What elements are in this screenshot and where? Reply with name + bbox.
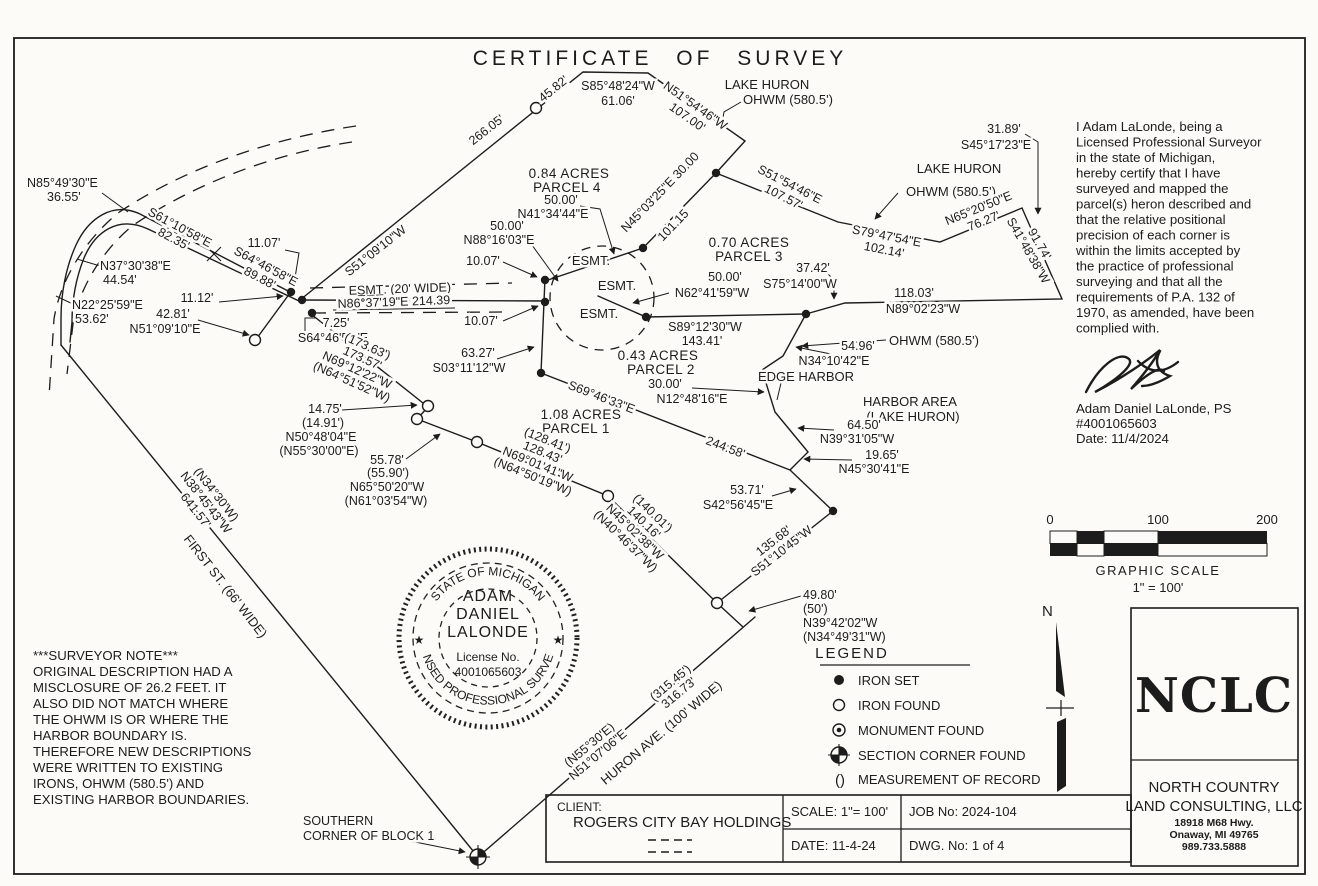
iron-set-symbol [712,169,720,177]
graphic-scale: 0 100 200 GRAPHIC SCALE 1" = 100' [1046,512,1277,595]
cert-line: requirements of P.A. 132 of [1076,290,1235,305]
note-line: HARBOR BOUNDARY IS. [33,728,187,743]
dim-label: 36.55' [47,190,81,204]
dim-label: 54.96' [841,339,875,353]
dim-label: 11.07' [248,236,281,250]
harbor-label: EDGE HARBOR [758,369,854,384]
iron-found-icon [834,700,845,711]
cert-line: surveyed and mapped the [1076,181,1229,196]
client-name: ROGERS CITY BAY HOLDINGS [573,814,791,831]
legend-item-label: SECTION CORNER FOUND [858,748,1026,763]
dim-label: 49.80' [803,588,837,602]
seal-license-label: License No. [456,650,519,664]
dim-label: N45°03'25"E 30.00 [618,149,701,235]
note-line: ORIGINAL DESCRIPTION HAD A [33,664,233,679]
section-corner-icon [828,744,850,766]
iron-set-symbol [287,288,295,296]
parcel-area-label: 0.70 ACRES [709,235,790,250]
dim-label: N12°48'16"E [657,392,728,406]
cert-line: in the state of Michigan, [1076,150,1215,165]
dim-label: 143.41' [682,334,723,348]
dim-label: 30.00' [648,377,682,391]
dim-label: N22°25'59"E [72,298,143,312]
note-line: THE OHWM IS OR WHERE THE [33,712,229,727]
firm-name: LAND CONSULTING, LLC [1125,798,1302,815]
legend-title: LEGEND [815,645,889,662]
scale-label: GRAPHIC SCALE [1096,563,1221,578]
ohwm-label: OHWM (580.5') [743,92,833,107]
dim-label: 118.03' [894,286,934,300]
dim-label: 14.75' [308,402,342,416]
legend-item-label: MONUMENT FOUND [858,723,984,738]
dim-label: 53.71' [730,483,764,497]
dim-label: 44.54' [103,273,137,287]
ohwm-label: OHWM (580.5') [889,333,979,348]
scale-tick: 200 [1256,512,1278,527]
iron-set-symbol [802,310,810,318]
parcel-name-label: PARCEL 3 [715,249,783,264]
dim-label: 31.89' [987,122,1021,136]
corner-note-label: SOUTHERN [303,814,373,828]
dim-label: N39°42'02"W [803,616,878,630]
dim-label: S51°09'10"W [342,223,409,280]
dim-label: S89°12'30"W [668,320,742,334]
cert-line: hereby certify that I have [1076,166,1220,181]
parcel-area-label: 0.84 ACRES [529,166,610,181]
dim-label: 101.15 [655,207,692,244]
surveyor-name: Adam Daniel LaLonde, PS [1076,401,1232,416]
dim-label: 53.62' [75,312,109,326]
dim-label: 11.12' [181,291,214,305]
iron-set-symbol [829,507,837,515]
dim-label: 50.00' [544,193,578,207]
note-line: ALSO DID NOT MATCH WHERE [33,696,228,711]
easement-label: ESMT. [572,253,610,268]
dim-label: N37°30'38"E [100,259,171,273]
dim-label-group: S61°10'58"E 82.35' [139,205,214,262]
page-title: CERTIFICATE OF SURVEY [473,47,848,70]
iron-set-symbol [541,276,549,284]
legend-item-label: MEASUREMENT OF RECORD [858,772,1041,787]
cert-line: I Adam LaLonde, being a [1076,119,1223,134]
cert-line: the practice of professional [1076,259,1234,274]
dim-label: N62°41'59"W [675,286,750,300]
legend-item-label: IRON FOUND [858,698,940,713]
seal-star-icon: ★ [414,633,425,647]
dim-label: N89°02'23"W [886,302,961,316]
iron-set-symbol [298,296,306,304]
firm-phone: 989.733.5888 [1182,841,1246,853]
parcel-name-label: PARCEL 2 [627,362,695,377]
dim-label-group: N51°54'46"W 107.00' [653,79,730,145]
dim-label: (55.90') [367,466,409,480]
cert-line: Licensed Professional Surveyor [1076,135,1262,150]
north-arrow: N [1042,603,1074,792]
iron-set-icon [834,675,844,685]
cert-line: parcel(s) heron described and [1076,197,1251,212]
firm-address: 18918 M68 Hwy. [1174,817,1253,829]
dim-label: 50.00' [490,219,524,233]
cert-line: within the limits accepted by [1075,243,1241,258]
dim-label-group: 135.68' S51°10'45"W [740,513,815,580]
seal-star-icon: ★ [553,633,564,647]
note-line: IRONS, OHWM (580.5') AND [33,776,204,791]
dim-label: 266.05' [466,112,507,148]
dim-label: N51°09'10"E [130,322,201,336]
iron-set-symbol [308,309,316,317]
seal-name-line: LALONDE [447,624,529,641]
dim-label: N65°50'20"W [350,480,425,494]
iron-set-symbol [639,244,647,252]
dim-label: 10.07' [466,254,500,268]
dim-label: 244.58' [704,433,747,461]
dim-label: S45°17'23"E [961,138,1031,152]
title-block: CLIENT: ROGERS CITY BAY HOLDINGS SCALE: … [546,795,1131,862]
dim-label: N45°30'41"E [839,462,910,476]
harbor-label: HARBOR AREA [863,394,957,409]
dim-label: 45.82' [536,73,571,105]
firm-name: NORTH COUNTRY [1148,779,1279,796]
waterbody-label: LAKE HURON [917,161,1002,176]
dim-label: 19.65' [865,448,899,462]
note-line: ***SURVEYOR NOTE*** [33,648,178,663]
dim-label: N41°34'44"E [518,207,589,221]
cert-line: 1970, as amended, have been [1076,305,1254,320]
note-line: MISCLOSURE OF 26.2 FEET. IT [33,680,226,695]
dim-label-group: S79°47'54"E 102.14' [848,223,922,264]
dim-label: 61.06' [601,94,635,108]
surveyor-license: #4001065603 [1076,416,1157,431]
iron-found-symbol [712,598,723,609]
waterbody-label: LAKE HURON [725,77,810,92]
dim-label: (50') [803,602,828,616]
seal-name-line: ADAM [463,588,513,605]
scale-ratio: 1" = 100' [1133,580,1184,595]
dim-label: N50°48'04"E [286,430,357,444]
dim-label: 55.78' [370,453,404,467]
north-label: N [1042,603,1053,620]
dim-label: S75°14'00"W [763,277,837,291]
client-label: CLIENT: [557,800,602,814]
dim-label: N34°10'42"E [799,354,870,368]
dim-label: (14.91') [302,416,344,430]
dim-label: (N34°49'31"W) [803,630,886,644]
seal-license-number: 4001065603 [455,665,522,679]
signature [1086,350,1178,392]
iron-found-symbol [412,414,423,425]
parcel-area-label: 1.08 ACRES [541,407,622,422]
firm-box: NCLC NORTH COUNTRY LAND CONSULTING, LLC … [1125,608,1302,866]
drawing-number-field: DWG. No: 1 of 4 [909,838,1004,853]
survey-drawing: CERTIFICATE OF SURVEY [0,0,1318,886]
dim-label: N88°16'03"E [464,233,535,247]
scale-tick: 0 [1046,512,1053,527]
scale-bar [1050,531,1267,556]
certification-statement: I Adam LaLonde, being a Licensed Profess… [1075,119,1262,446]
iron-set-symbol [642,313,650,321]
dim-label: 42.81' [156,307,190,321]
scale-tick: 100 [1147,512,1169,527]
dim-label-group: (N34°30'W) N38°45'43"W 641.57' [167,461,244,544]
cert-line: complied with. [1076,321,1160,336]
iron-found-symbol [250,335,261,346]
dim-label: 7.25' [323,316,350,330]
scale-field: SCALE: 1"= 100' [791,804,888,819]
note-line: WERE WRITTEN TO EXISTING [33,760,223,775]
iron-found-symbol [603,491,614,502]
dim-label: N39°31'05"W [820,432,895,446]
firm-address: Onaway, MI 49765 [1169,829,1258,841]
cert-line: precision of each corner is [1076,228,1230,243]
client-dashes [648,840,692,852]
dim-label: S42°56'45"E [703,498,773,512]
iron-set-symbol [541,298,549,306]
iron-found-symbol [423,401,434,412]
legend-item-label: IRON SET [858,673,919,688]
dim-label: 63.27' [461,346,495,360]
note-line: EXISTING HARBOR BOUNDARIES. [33,792,249,807]
dim-label: (N61°03'54"W) [345,494,428,508]
cert-line: that the relative positional [1076,212,1226,227]
note-line: THEREFORE NEW DESCRIPTIONS [33,744,252,759]
dim-label-group: 91.74' S41°48'38"W [1004,209,1064,286]
date-field: DATE: 11-4-24 [791,838,876,853]
dim-label: 50.00' [708,270,742,284]
dim-label: N85°49'30"E [27,176,98,190]
survey-date: Date: 11/4/2024 [1076,431,1169,446]
survey-sheet-page: CERTIFICATE OF SURVEY [0,0,1318,886]
iron-found-symbol [531,103,542,114]
parentheses-icon: () [835,772,845,789]
seal-name-line: DANIEL [456,606,520,623]
dim-label: S85°48'24"W [581,79,655,93]
easement-label: ESMT. [580,306,618,321]
dim-label: (N55°30'00"E) [279,444,358,458]
surveyor-note: ***SURVEYOR NOTE*** ORIGINAL DESCRIPTION… [33,648,252,807]
firm-logo: NCLC [1135,668,1293,724]
dim-label: 37.42' [796,261,830,275]
dim-label: 64.50' [847,418,881,432]
dim-label: S03°11'12"W [433,361,506,375]
job-number-field: JOB No: 2024-104 [909,804,1017,819]
monument-found-icon [833,724,845,736]
iron-found-symbol [472,437,483,448]
ohwm-label: OHWM (580.5') [906,184,996,199]
dim-label: 10.07' [464,314,498,328]
easement-label: ESMT. [598,278,636,293]
section-corner-symbol [466,845,490,869]
parcel-area-label: 0.43 ACRES [618,348,699,363]
corner-note-label: CORNER OF BLOCK 1 [303,829,434,843]
iron-set-symbol [537,369,545,377]
cert-line: surveying and that all the [1076,274,1223,289]
legend: LEGEND IRON SET IRON FOUND MONUMENT FOUN… [815,645,1040,789]
